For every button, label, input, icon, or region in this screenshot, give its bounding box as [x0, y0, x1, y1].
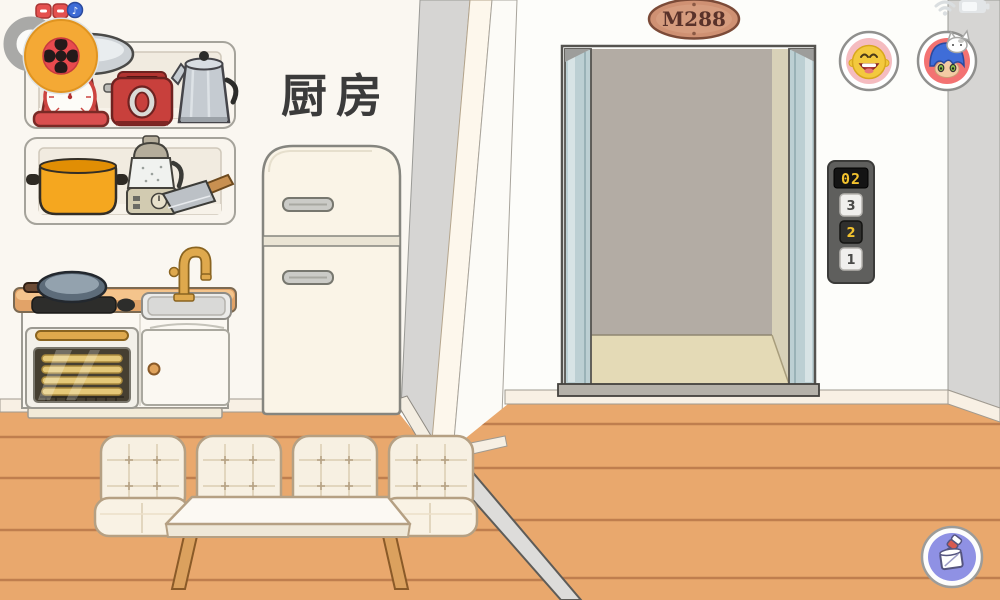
cabinet-knob	[149, 364, 160, 375]
elevator-side-wall	[772, 49, 789, 384]
elevator-floor	[591, 335, 789, 384]
svg-text:3: 3	[846, 199, 855, 214]
toggle-icon-red-2[interactable]	[53, 4, 68, 18]
refrigerator[interactable]	[263, 146, 400, 414]
music-toggle-icon[interactable]: ♪	[68, 3, 83, 18]
cabinet-door[interactable]	[142, 324, 229, 405]
floor-display-text: 02	[841, 170, 861, 188]
game-scene: M288 02 3 2 1 厨房	[0, 0, 1000, 600]
toaster[interactable]	[104, 72, 172, 126]
toggle-icon-red-1[interactable]	[36, 4, 51, 18]
fridge-divider	[263, 236, 400, 246]
floor-button-3[interactable]: 3	[840, 194, 862, 216]
avatar-button-1[interactable]	[840, 32, 898, 90]
floor-button-2-active[interactable]: 2	[840, 221, 862, 243]
elevator-back-wall	[591, 49, 772, 335]
orange-pot[interactable]	[26, 159, 128, 214]
table-top	[166, 497, 410, 524]
oven[interactable]	[26, 328, 138, 408]
elevator-door-left[interactable]	[565, 49, 591, 386]
paint-button[interactable]	[922, 527, 982, 587]
stove-knob[interactable]	[117, 299, 135, 312]
avatar-button-2[interactable]	[918, 31, 976, 90]
svg-text:♪: ♪	[72, 6, 78, 17]
elevator-panel: 02 3 2 1	[828, 161, 874, 283]
svg-text:2: 2	[846, 226, 855, 241]
elevator-door-right[interactable]	[789, 49, 815, 386]
elevator-sign-text: M288	[662, 7, 726, 31]
room-label: 厨房	[281, 69, 391, 123]
table-apron	[166, 524, 410, 537]
elevator-sign-plaque: M288	[649, 0, 739, 39]
oven-handle	[36, 331, 128, 340]
elevator-sill	[558, 384, 819, 396]
floor-button-1[interactable]: 1	[840, 248, 862, 270]
battery-icon	[959, 0, 990, 13]
svg-text:1: 1	[846, 253, 855, 268]
